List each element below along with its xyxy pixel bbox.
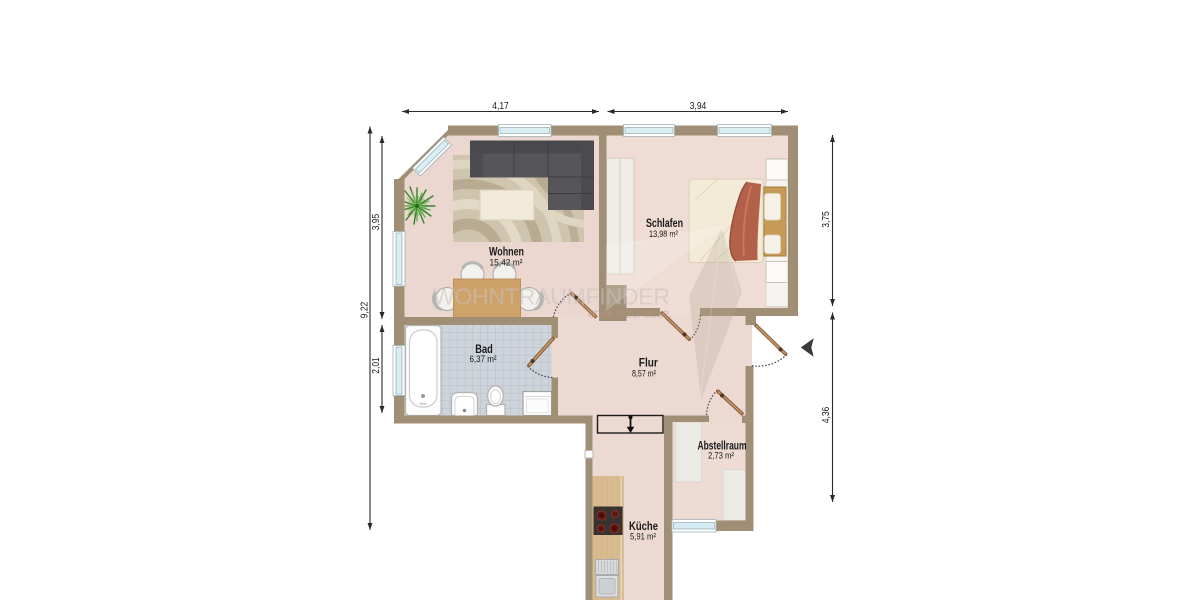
svg-text:4,17: 4,17 (492, 101, 509, 112)
svg-text:endlich zuhause.: endlich zuhause. (588, 307, 672, 321)
svg-text:Wohnen: Wohnen (489, 245, 524, 259)
svg-text:Schlafen: Schlafen (646, 216, 683, 230)
svg-text:3,95: 3,95 (371, 213, 382, 230)
svg-text:2,01: 2,01 (371, 357, 382, 374)
svg-text:9,22: 9,22 (360, 301, 371, 318)
svg-text:5,91 m²: 5,91 m² (630, 532, 656, 543)
svg-text:6,37 m²: 6,37 m² (470, 354, 497, 365)
svg-text:Flur: Flur (639, 356, 658, 370)
svg-text:15,42 m²: 15,42 m² (490, 258, 523, 269)
svg-text:2,73 m²: 2,73 m² (708, 451, 734, 462)
svg-text:4,36: 4,36 (821, 406, 832, 423)
svg-text:3,75: 3,75 (821, 211, 832, 228)
svg-text:8,57 m²: 8,57 m² (632, 369, 656, 380)
svg-text:3,94: 3,94 (690, 101, 707, 112)
